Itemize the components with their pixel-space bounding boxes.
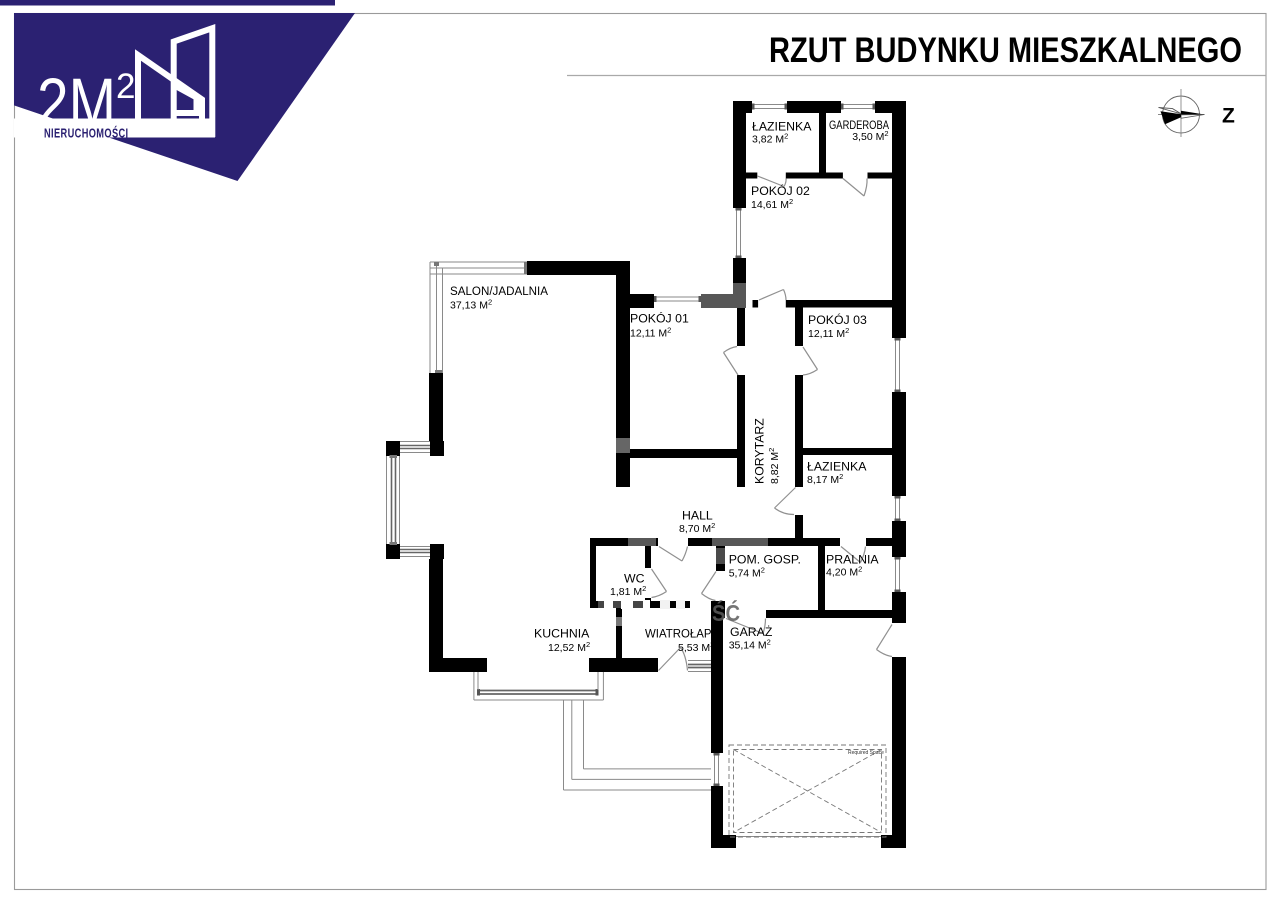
svg-text:1,81 M2: 1,81 M2 bbox=[610, 584, 646, 598]
svg-text:KUCHNIA: KUCHNIA bbox=[534, 627, 590, 641]
svg-text:SALON/JADALNIA: SALON/JADALNIA bbox=[450, 284, 549, 298]
svg-text:4,20 M2: 4,20 M2 bbox=[826, 565, 862, 579]
svg-text:GARDEROBA: GARDEROBA bbox=[829, 118, 890, 132]
svg-text:RZUT BUDYNKU MIESZKALNEGO: RZUT BUDYNKU MIESZKALNEGO bbox=[769, 31, 1242, 70]
svg-text:POM. GOSP.: POM. GOSP. bbox=[729, 552, 801, 566]
svg-text:POKÓJ 01: POKÓJ 01 bbox=[630, 311, 689, 326]
svg-text:ŚĆ: ŚĆ bbox=[712, 599, 740, 626]
svg-text:WIATROŁAP: WIATROŁAP bbox=[645, 627, 712, 641]
svg-text:8,70 M2: 8,70 M2 bbox=[679, 521, 715, 535]
svg-text:Required Space: Required Space bbox=[848, 750, 884, 756]
svg-text:5,53 M2: 5,53 M2 bbox=[678, 640, 714, 654]
svg-text:POKÓJ 03: POKÓJ 03 bbox=[808, 312, 867, 327]
svg-text:NIERUCHOMOŚCI: NIERUCHOMOŚCI bbox=[44, 125, 129, 140]
svg-text:14,61 M2: 14,61 M2 bbox=[751, 197, 793, 211]
svg-text:ŁAZIENKA: ŁAZIENKA bbox=[807, 460, 867, 474]
svg-text:ŁAZIENKA: ŁAZIENKA bbox=[752, 119, 812, 133]
svg-text:PRALNIA: PRALNIA bbox=[826, 552, 879, 566]
svg-text:12,11 M2: 12,11 M2 bbox=[808, 326, 849, 340]
svg-text:37,13 M2: 37,13 M2 bbox=[450, 297, 492, 311]
svg-text:12,52 M2: 12,52 M2 bbox=[548, 640, 590, 654]
svg-text:3,82 M2: 3,82 M2 bbox=[752, 132, 788, 146]
svg-text:12,11 M2: 12,11 M2 bbox=[630, 326, 671, 340]
svg-text:2: 2 bbox=[116, 67, 135, 106]
svg-text:8,82 M2: 8,82 M2 bbox=[767, 448, 781, 484]
svg-text:35,14 M2: 35,14 M2 bbox=[729, 638, 771, 652]
svg-text:POKÓJ 02: POKÓJ 02 bbox=[751, 183, 810, 198]
svg-text:KORYTARZ: KORYTARZ bbox=[753, 418, 767, 484]
svg-text:8,17 M2: 8,17 M2 bbox=[807, 472, 843, 486]
svg-text:HALL: HALL bbox=[682, 509, 713, 523]
svg-text:Z: Z bbox=[1222, 105, 1235, 128]
svg-text:5,74 M2: 5,74 M2 bbox=[729, 566, 765, 580]
svg-text:3,50 M2: 3,50 M2 bbox=[852, 129, 888, 143]
